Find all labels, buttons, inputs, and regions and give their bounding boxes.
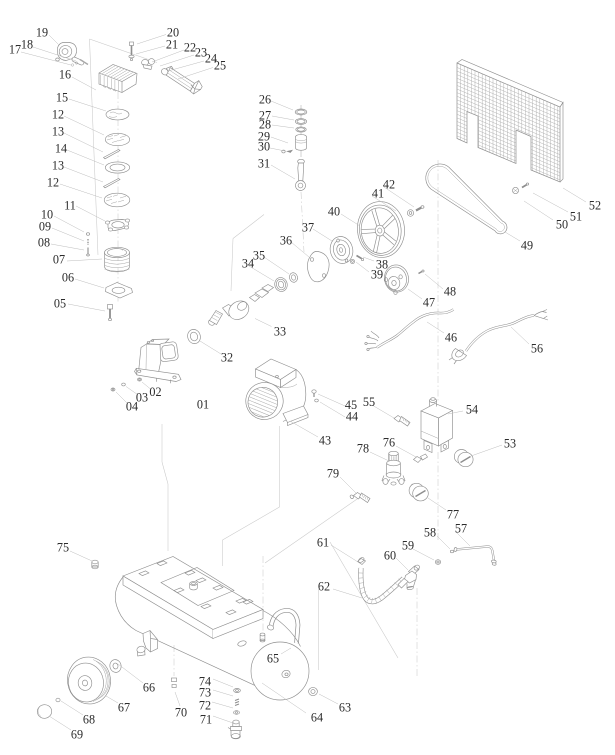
svg-text:05: 05 — [54, 297, 66, 311]
svg-text:48: 48 — [444, 285, 456, 299]
svg-text:47: 47 — [423, 296, 435, 310]
svg-text:56: 56 — [531, 342, 543, 356]
svg-text:13: 13 — [52, 125, 64, 139]
svg-text:69: 69 — [71, 728, 83, 742]
svg-text:09: 09 — [39, 220, 51, 234]
svg-text:49: 49 — [521, 239, 533, 253]
svg-text:60: 60 — [384, 549, 396, 563]
svg-text:79: 79 — [327, 467, 339, 481]
svg-text:62: 62 — [318, 580, 330, 594]
svg-text:40: 40 — [328, 205, 340, 219]
svg-text:78: 78 — [357, 442, 369, 456]
svg-text:70: 70 — [175, 706, 187, 720]
svg-text:61: 61 — [317, 536, 329, 550]
svg-text:33: 33 — [274, 325, 286, 339]
svg-text:32: 32 — [221, 351, 233, 365]
svg-text:14: 14 — [55, 142, 67, 156]
svg-text:37: 37 — [302, 221, 314, 235]
svg-text:59: 59 — [402, 539, 414, 553]
svg-text:68: 68 — [83, 713, 95, 727]
svg-text:75: 75 — [57, 541, 69, 555]
svg-text:11: 11 — [64, 199, 76, 213]
svg-text:26: 26 — [259, 93, 271, 107]
svg-text:74: 74 — [199, 675, 211, 689]
svg-text:65: 65 — [267, 652, 279, 666]
svg-text:52: 52 — [589, 199, 601, 213]
svg-text:71: 71 — [200, 713, 212, 727]
svg-text:19: 19 — [36, 26, 48, 40]
svg-text:50: 50 — [556, 218, 568, 232]
svg-text:51: 51 — [570, 210, 582, 224]
svg-text:77: 77 — [447, 508, 459, 522]
svg-text:42: 42 — [383, 178, 395, 192]
svg-text:10: 10 — [41, 208, 53, 222]
svg-text:63: 63 — [339, 701, 351, 715]
svg-text:31: 31 — [258, 157, 270, 171]
svg-text:36: 36 — [280, 234, 292, 248]
svg-text:13: 13 — [52, 159, 64, 173]
svg-text:39: 39 — [371, 268, 383, 282]
svg-text:16: 16 — [59, 68, 71, 82]
svg-text:76: 76 — [383, 436, 395, 450]
svg-text:18: 18 — [21, 38, 33, 52]
svg-text:57: 57 — [455, 522, 467, 536]
svg-text:04: 04 — [126, 400, 138, 414]
svg-text:30: 30 — [258, 140, 270, 154]
svg-text:64: 64 — [311, 711, 323, 725]
svg-text:21: 21 — [166, 38, 178, 52]
svg-text:06: 06 — [62, 271, 74, 285]
svg-text:17: 17 — [9, 43, 21, 57]
svg-text:02: 02 — [149, 385, 161, 399]
svg-text:12: 12 — [47, 176, 59, 190]
svg-text:01: 01 — [197, 398, 209, 412]
svg-text:53: 53 — [504, 437, 516, 451]
svg-text:72: 72 — [199, 699, 211, 713]
svg-text:35: 35 — [253, 249, 265, 263]
svg-text:12: 12 — [52, 108, 64, 122]
svg-text:67: 67 — [118, 701, 130, 715]
svg-text:43: 43 — [319, 434, 331, 448]
svg-text:54: 54 — [466, 403, 478, 417]
svg-text:55: 55 — [363, 395, 375, 409]
svg-text:45: 45 — [345, 398, 357, 412]
svg-text:08: 08 — [38, 236, 50, 250]
svg-text:25: 25 — [214, 59, 226, 73]
svg-text:58: 58 — [424, 526, 436, 540]
svg-text:15: 15 — [56, 91, 68, 105]
svg-text:66: 66 — [143, 681, 155, 695]
svg-text:46: 46 — [445, 331, 457, 345]
svg-text:07: 07 — [53, 253, 65, 267]
